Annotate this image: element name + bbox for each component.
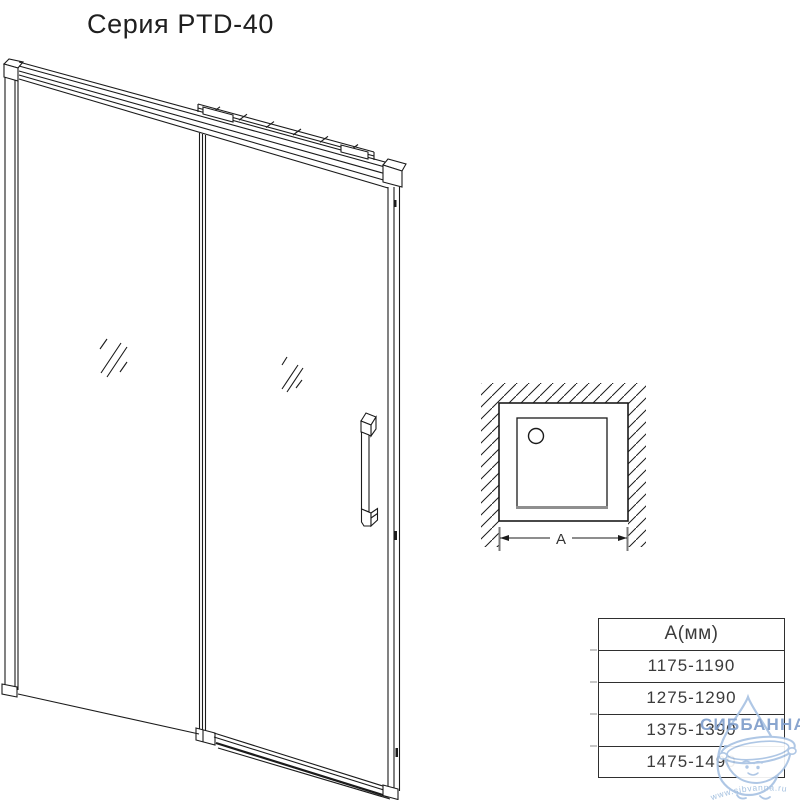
right-wall-profile (388, 187, 400, 791)
left-wall-profile (2, 59, 23, 697)
sliding-glass-panel (282, 357, 303, 392)
size-table-row: 1375-1390 (599, 714, 784, 746)
glass-symbol-right (282, 357, 303, 392)
middle-stile (196, 133, 215, 745)
top-rail (19, 62, 406, 188)
dimension-line: A (500, 527, 628, 551)
size-table-row: 1475-1490 (599, 746, 784, 778)
door-front-view (2, 59, 406, 800)
fixed-glass-panel (18, 339, 199, 734)
bottom-rail (214, 733, 398, 800)
dimension-label: A (556, 531, 566, 548)
tray-outline (499, 403, 628, 521)
door-handle (361, 413, 378, 526)
glass-symbol-left (100, 339, 127, 377)
size-table: А(мм) 1175-1190 1275-1290 1375-1390 1475… (598, 618, 785, 778)
page-title: Серия PTD-40 (87, 9, 274, 40)
size-table-header: А(мм) (599, 619, 784, 650)
tray-top-view: A (481, 383, 646, 551)
size-table-row: 1275-1290 (599, 682, 784, 714)
size-table-row: 1175-1190 (599, 650, 784, 682)
